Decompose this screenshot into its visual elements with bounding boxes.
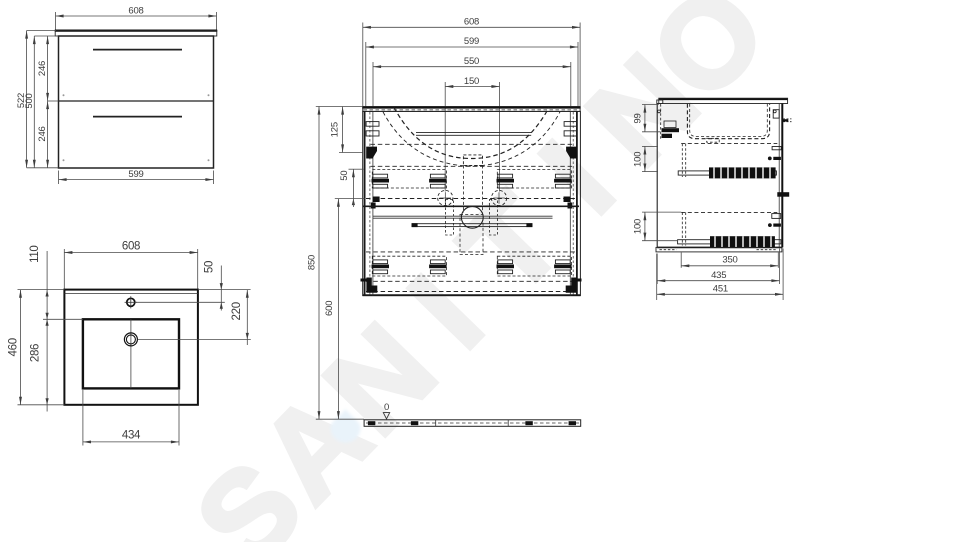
svg-text:500: 500	[24, 93, 35, 108]
svg-text:125: 125	[330, 122, 341, 137]
svg-text:608: 608	[128, 6, 143, 17]
svg-text:435: 435	[711, 270, 726, 281]
svg-text:100: 100	[632, 219, 643, 234]
svg-text:99: 99	[632, 113, 643, 123]
svg-text:550: 550	[464, 56, 479, 67]
svg-text:0: 0	[384, 402, 389, 413]
svg-text:600: 600	[324, 301, 335, 316]
svg-text:599: 599	[128, 169, 143, 180]
svg-text:220: 220	[231, 302, 243, 320]
svg-text:599: 599	[464, 36, 479, 47]
svg-text:246: 246	[37, 126, 48, 141]
svg-text:150: 150	[464, 76, 479, 87]
svg-text:110: 110	[29, 245, 41, 262]
svg-text:100: 100	[632, 152, 643, 167]
svg-text:350: 350	[722, 255, 737, 266]
svg-text:50: 50	[339, 171, 350, 181]
svg-text:246: 246	[37, 61, 48, 76]
svg-text:460: 460	[8, 338, 20, 356]
svg-text:50: 50	[204, 261, 216, 273]
svg-text:286: 286	[30, 344, 42, 362]
svg-text:451: 451	[713, 284, 728, 295]
svg-text:434: 434	[122, 430, 141, 442]
svg-text:608: 608	[122, 241, 140, 253]
svg-text:850: 850	[307, 255, 318, 270]
svg-text:608: 608	[464, 17, 479, 28]
